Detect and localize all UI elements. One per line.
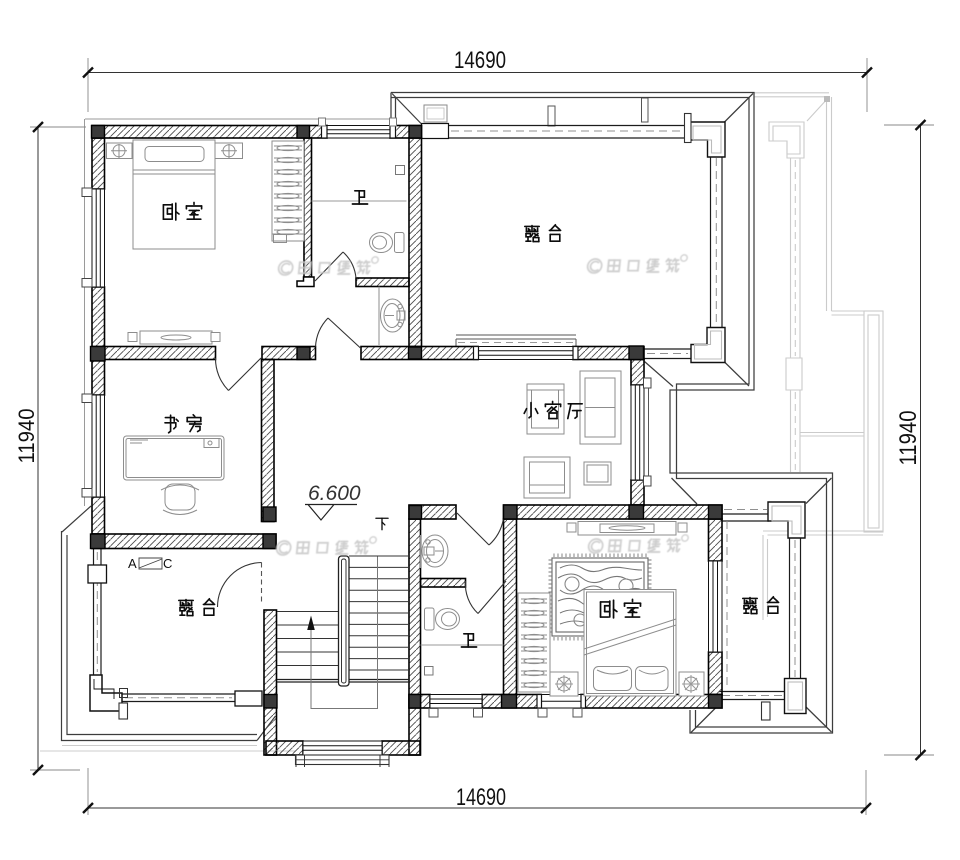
svg-text:11940: 11940 (14, 409, 39, 464)
svg-text:6.600: 6.600 (308, 482, 361, 505)
svg-text:14690: 14690 (454, 47, 506, 74)
svg-text:11940: 11940 (895, 411, 922, 466)
svg-text:C: C (163, 556, 172, 571)
svg-text:14690: 14690 (456, 784, 506, 811)
svg-text:A: A (128, 556, 137, 571)
